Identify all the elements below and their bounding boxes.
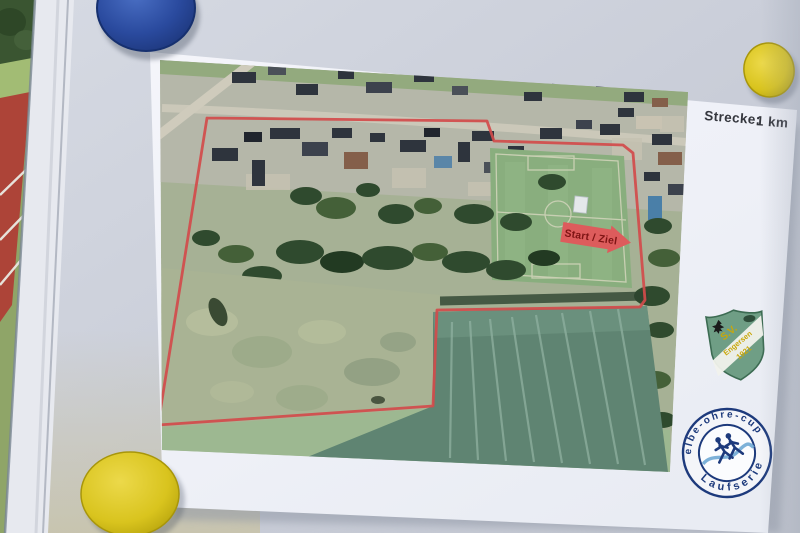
magnet-yellow-bottom-left <box>81 452 179 533</box>
notice-board-photo: Start / Ziel Strecke: 1 km S.V. Engersen… <box>0 0 800 533</box>
small-building <box>573 196 588 213</box>
pasture-field <box>158 268 440 428</box>
photo-edge-shading <box>760 0 800 533</box>
hedge-row <box>440 296 648 301</box>
photo-canvas: Start / Ziel Strecke: 1 km S.V. Engersen… <box>0 0 800 533</box>
aerial-map: Start / Ziel <box>150 60 688 472</box>
